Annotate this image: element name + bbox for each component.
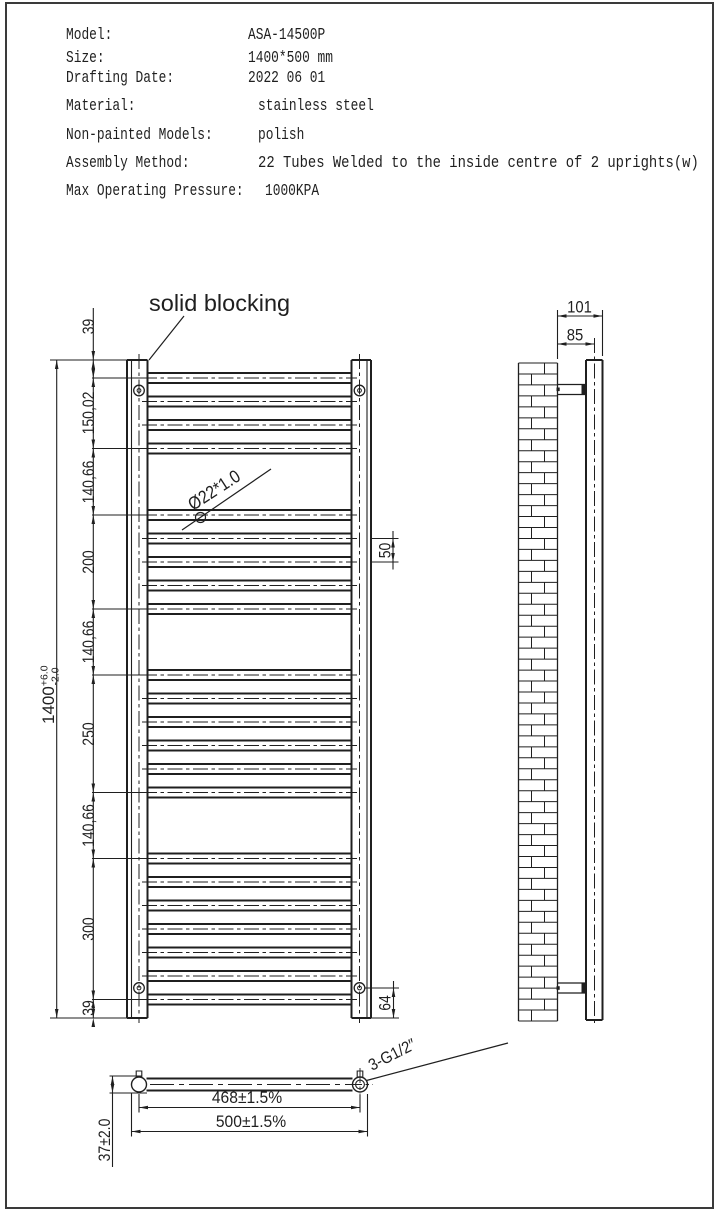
wall-bracket-top bbox=[557, 385, 587, 395]
dim-tapping-centers: 468±1.5% bbox=[212, 1088, 282, 1107]
dim-chain-200: 200 bbox=[80, 550, 98, 573]
dim-chain-39-top: 39 bbox=[80, 319, 98, 335]
tube-array bbox=[142, 373, 357, 1005]
dim-chain-39-bottom: 39 bbox=[80, 1000, 98, 1016]
solid-blocking-callout: solid blocking bbox=[149, 290, 290, 316]
right-upright bbox=[352, 354, 372, 1023]
side-view: 101 85 bbox=[519, 299, 603, 1026]
dim-depth: 37±2.0 bbox=[96, 1119, 114, 1162]
brick-hatch bbox=[519, 363, 558, 1021]
dim-chain-250: 250 bbox=[80, 722, 98, 745]
bracket-marker bbox=[134, 385, 365, 993]
radiator-side-profile bbox=[586, 338, 603, 1026]
dim-chain-150: 150,02 bbox=[80, 392, 98, 435]
dim-chain-140b: 140,66 bbox=[80, 621, 98, 664]
dim-overall-depth: 101 bbox=[567, 299, 592, 317]
dim-chain-300: 300 bbox=[80, 917, 98, 940]
drawing-sheet: Model: ASA-14500P Size: 1400*500 mm Draf… bbox=[0, 0, 720, 1215]
wall-bracket-bottom bbox=[557, 983, 587, 993]
blocking-leader-line bbox=[149, 316, 184, 360]
dim-wall-to-center: 85 bbox=[567, 327, 584, 345]
dim-chain-140c: 140,66 bbox=[80, 804, 98, 847]
bottom-view: 468±1.5% 500±1.5% 37±2.0 3-G1/2″ bbox=[96, 1036, 508, 1167]
dim-overall-width: 500±1.5% bbox=[216, 1112, 286, 1131]
tapping-left bbox=[132, 1071, 147, 1092]
dim-bracket-offset: 64 bbox=[376, 995, 394, 1011]
dim-chain-140a: 140,66 bbox=[80, 461, 98, 504]
technical-drawing: solid blocking 1400+6.0-2.0 39 150,02 14… bbox=[0, 0, 720, 1215]
left-upright bbox=[127, 354, 148, 1023]
front-view: solid blocking 1400+6.0-2.0 39 150,02 14… bbox=[39, 290, 400, 1023]
dim-overall-height: 1400+6.0-2.0 bbox=[39, 665, 62, 724]
chain-extension-lines bbox=[92, 378, 148, 1000]
